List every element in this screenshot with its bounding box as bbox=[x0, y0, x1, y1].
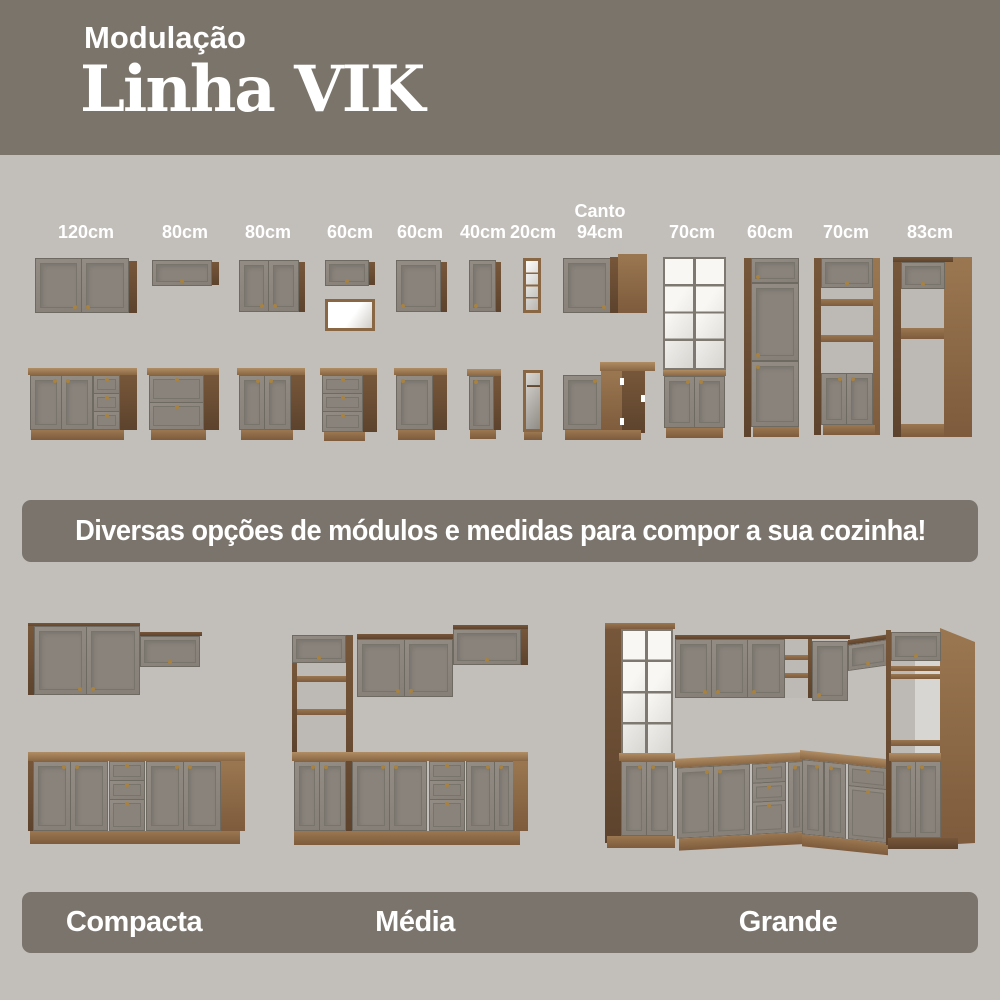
door bbox=[846, 373, 873, 425]
plinth bbox=[30, 831, 240, 844]
door bbox=[675, 639, 712, 698]
wood-side-panel bbox=[944, 257, 972, 437]
door bbox=[494, 761, 514, 831]
door bbox=[404, 639, 453, 697]
countertop bbox=[28, 368, 137, 375]
module-label-60a: 60cm bbox=[315, 222, 385, 243]
size-label-grande: Grande bbox=[708, 892, 868, 953]
door bbox=[70, 761, 108, 831]
shelf bbox=[891, 666, 940, 671]
door bbox=[563, 375, 602, 430]
door bbox=[469, 376, 494, 430]
plinth bbox=[31, 430, 124, 440]
wood-side-panel bbox=[513, 761, 528, 831]
drawer bbox=[752, 800, 786, 835]
door bbox=[821, 373, 847, 425]
door bbox=[747, 639, 785, 698]
wood-panel bbox=[432, 375, 447, 430]
door bbox=[146, 761, 184, 831]
wood-panel bbox=[290, 375, 305, 430]
wood-panel bbox=[362, 375, 377, 432]
shelf bbox=[901, 328, 944, 339]
wood-band bbox=[619, 753, 675, 761]
door bbox=[396, 375, 433, 430]
wood-panel bbox=[203, 375, 219, 430]
module-label-60b: 60cm bbox=[385, 222, 455, 243]
wood-panel bbox=[744, 258, 751, 437]
countertop bbox=[237, 368, 305, 375]
base-run-right bbox=[800, 748, 890, 857]
banner-text: Diversas opções de módulos e medidas par… bbox=[75, 515, 926, 548]
header-subtitle: Modulação bbox=[84, 20, 246, 56]
door bbox=[824, 762, 846, 839]
open-base-unit bbox=[523, 370, 543, 432]
shelf bbox=[821, 335, 873, 342]
drawer bbox=[93, 393, 120, 412]
door bbox=[563, 258, 611, 313]
door bbox=[751, 361, 799, 427]
plinth bbox=[151, 430, 206, 440]
wood-side-panel bbox=[605, 628, 621, 843]
wood-side-panel bbox=[940, 628, 975, 845]
module-label-70a: 70cm bbox=[657, 222, 727, 243]
plinth bbox=[823, 425, 875, 435]
flip-door bbox=[891, 632, 941, 661]
drawer bbox=[322, 375, 363, 394]
plinth bbox=[666, 428, 723, 438]
door bbox=[35, 258, 82, 313]
door bbox=[86, 626, 140, 695]
glass-door bbox=[646, 629, 673, 758]
door bbox=[915, 761, 941, 838]
door bbox=[713, 764, 750, 837]
flip-door bbox=[292, 635, 346, 663]
open-compartment bbox=[901, 289, 944, 437]
glass-door bbox=[621, 629, 647, 758]
door bbox=[389, 761, 427, 831]
flip-door bbox=[821, 258, 873, 288]
hinge bbox=[620, 378, 624, 385]
door bbox=[621, 761, 647, 836]
door bbox=[664, 376, 695, 428]
wood-band bbox=[889, 753, 941, 761]
base-run-left bbox=[675, 750, 805, 857]
wood-corner-panel bbox=[618, 254, 647, 313]
flip-door bbox=[901, 262, 945, 289]
bridge-cabinet bbox=[848, 634, 888, 676]
page-title: Linha VIK bbox=[80, 52, 423, 127]
plinth bbox=[398, 430, 435, 440]
module-label-60c: 60cm bbox=[735, 222, 805, 243]
plinth bbox=[607, 836, 675, 848]
flip-door bbox=[140, 636, 200, 667]
door bbox=[711, 639, 748, 698]
drawer bbox=[149, 402, 204, 430]
countertop bbox=[28, 752, 245, 761]
plinth bbox=[888, 838, 958, 849]
wood-panel bbox=[814, 258, 821, 435]
door bbox=[802, 759, 824, 836]
wood-side-panel bbox=[221, 761, 245, 831]
wood-panel bbox=[493, 376, 501, 430]
countertop bbox=[467, 369, 501, 376]
door bbox=[34, 626, 87, 695]
door bbox=[396, 260, 441, 312]
size-label-compacta: Compacta bbox=[54, 892, 214, 953]
shelf bbox=[891, 740, 940, 746]
flip-door bbox=[152, 260, 212, 286]
door bbox=[352, 761, 390, 831]
drawer bbox=[109, 799, 145, 831]
wood-panel bbox=[873, 258, 880, 435]
door bbox=[646, 761, 673, 836]
shelf bbox=[297, 709, 346, 715]
door bbox=[677, 766, 714, 839]
drawer bbox=[109, 780, 145, 800]
module-label-canto-94: Canto 94cm bbox=[565, 201, 635, 242]
door bbox=[319, 761, 346, 831]
door bbox=[81, 258, 129, 313]
wood-panel bbox=[521, 629, 528, 665]
door bbox=[751, 283, 799, 361]
glass-door bbox=[663, 257, 695, 370]
open-shelf-unit bbox=[523, 258, 541, 313]
plinth bbox=[753, 427, 799, 437]
plinth bbox=[524, 432, 542, 440]
plinth bbox=[470, 430, 496, 439]
module-label-80b: 80cm bbox=[233, 222, 303, 243]
door bbox=[466, 761, 495, 831]
door bbox=[264, 375, 291, 430]
door bbox=[891, 761, 916, 838]
door bbox=[357, 639, 405, 697]
flip-door bbox=[325, 260, 369, 286]
drawer bbox=[429, 780, 465, 800]
hinge bbox=[620, 418, 624, 425]
shelf bbox=[901, 424, 944, 437]
drawer bbox=[109, 761, 145, 781]
door bbox=[469, 260, 496, 312]
module-label-120: 120cm bbox=[36, 222, 136, 243]
plinth bbox=[565, 430, 641, 440]
drawer bbox=[322, 411, 363, 432]
drawer bbox=[429, 799, 465, 831]
flip-door bbox=[453, 629, 521, 665]
corner-door bbox=[812, 641, 848, 701]
wood-panel bbox=[211, 262, 219, 285]
drawer bbox=[149, 375, 204, 403]
door bbox=[751, 258, 799, 283]
module-label-80a: 80cm bbox=[150, 222, 220, 243]
door bbox=[183, 761, 221, 831]
flyer-page: Modulação Linha VIK 120cm 80cm 80cm 60cm… bbox=[0, 0, 1000, 1000]
wood-fold-panel bbox=[622, 371, 645, 433]
module-label-70b: 70cm bbox=[811, 222, 881, 243]
drawer bbox=[93, 375, 120, 394]
glass-door bbox=[694, 257, 726, 370]
wood-panel bbox=[440, 262, 447, 312]
size-label-media: Média bbox=[335, 892, 495, 953]
open-niche bbox=[325, 299, 375, 331]
header-band: Modulação Linha VIK bbox=[0, 0, 1000, 155]
shelf bbox=[891, 674, 940, 679]
size-bar: Compacta Média Grande bbox=[22, 892, 978, 953]
plinth bbox=[241, 430, 293, 440]
door bbox=[30, 375, 62, 430]
plinth bbox=[294, 831, 520, 845]
countertop bbox=[394, 368, 447, 375]
flip-door bbox=[848, 639, 888, 671]
drawer bbox=[322, 393, 363, 412]
drawer bbox=[93, 411, 120, 430]
hinge bbox=[641, 395, 645, 402]
wood-panel bbox=[368, 262, 375, 285]
door bbox=[694, 376, 725, 428]
door bbox=[268, 260, 299, 312]
countertop bbox=[320, 368, 377, 375]
countertop bbox=[292, 752, 528, 761]
door bbox=[294, 761, 320, 831]
door bbox=[61, 375, 93, 430]
countertop bbox=[147, 368, 219, 375]
wood-panel bbox=[120, 375, 137, 430]
door bbox=[239, 375, 265, 430]
wood-panel bbox=[128, 261, 137, 313]
shelf bbox=[821, 299, 873, 306]
plinth bbox=[324, 432, 365, 441]
countertop bbox=[600, 362, 655, 371]
module-label-20: 20cm bbox=[503, 222, 563, 243]
banner: Diversas opções de módulos e medidas par… bbox=[22, 500, 978, 562]
shelf bbox=[297, 676, 346, 682]
drawer bbox=[429, 761, 465, 781]
door bbox=[239, 260, 269, 312]
towel-rail bbox=[527, 385, 540, 387]
wood-panel bbox=[298, 262, 305, 312]
module-label-83: 83cm bbox=[895, 222, 965, 243]
door bbox=[33, 761, 71, 831]
drawer bbox=[848, 785, 888, 843]
wood-panel bbox=[893, 257, 901, 437]
